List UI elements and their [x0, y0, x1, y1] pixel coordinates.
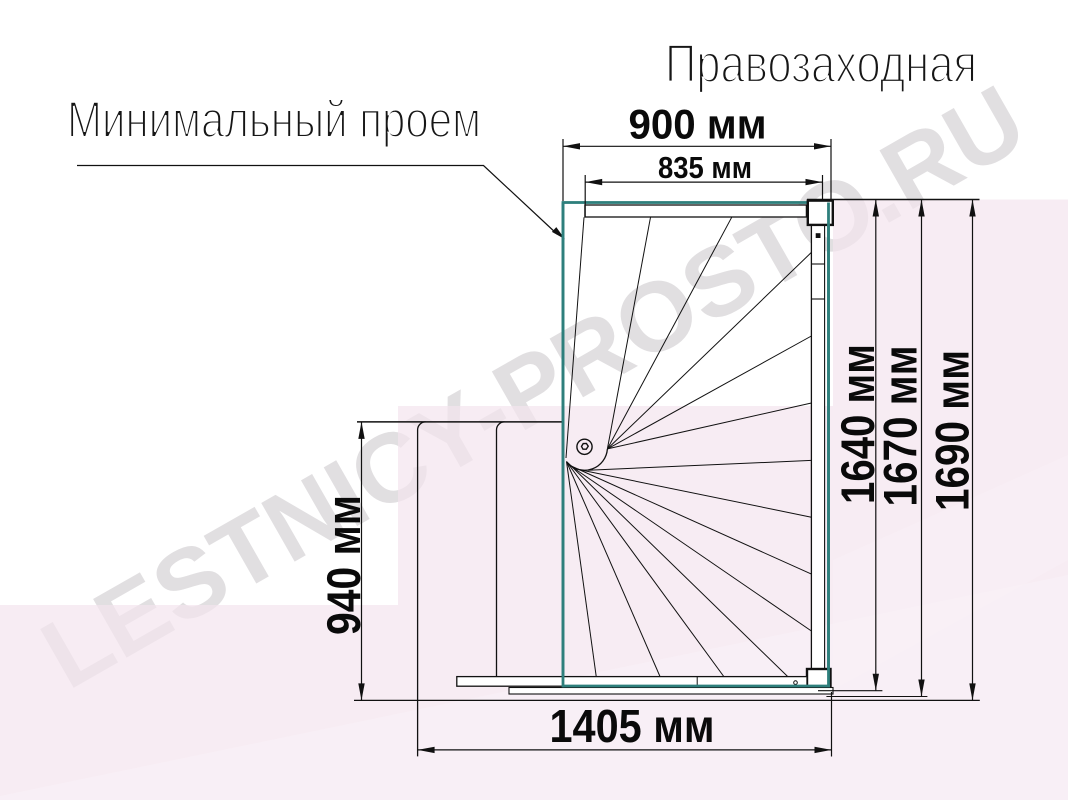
- svg-text:Правозаходная: Правозаходная: [665, 34, 977, 94]
- svg-text:835 мм: 835 мм: [658, 150, 752, 185]
- svg-text:1670 мм: 1670 мм: [874, 346, 927, 507]
- svg-text:940 мм: 940 мм: [317, 495, 370, 635]
- svg-text:1405 мм: 1405 мм: [550, 700, 715, 752]
- svg-text:Минимальный проем: Минимальный проем: [67, 91, 481, 148]
- svg-text:900 мм: 900 мм: [629, 100, 767, 147]
- svg-text:1690 мм: 1690 мм: [926, 350, 979, 511]
